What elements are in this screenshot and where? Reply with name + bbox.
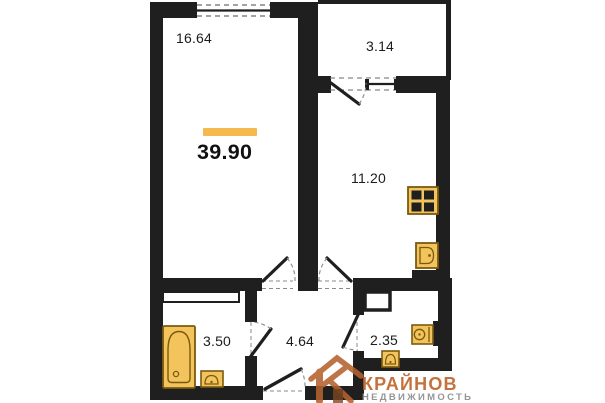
floor-plan: 16.64 3.14 39.90 11.20 3.50 4.64 2.35 КР…	[0, 0, 605, 403]
brand-logo-house-k-icon	[0, 0, 605, 403]
brand-subtitle: НЕДВИЖИМОСТЬ	[362, 392, 473, 403]
